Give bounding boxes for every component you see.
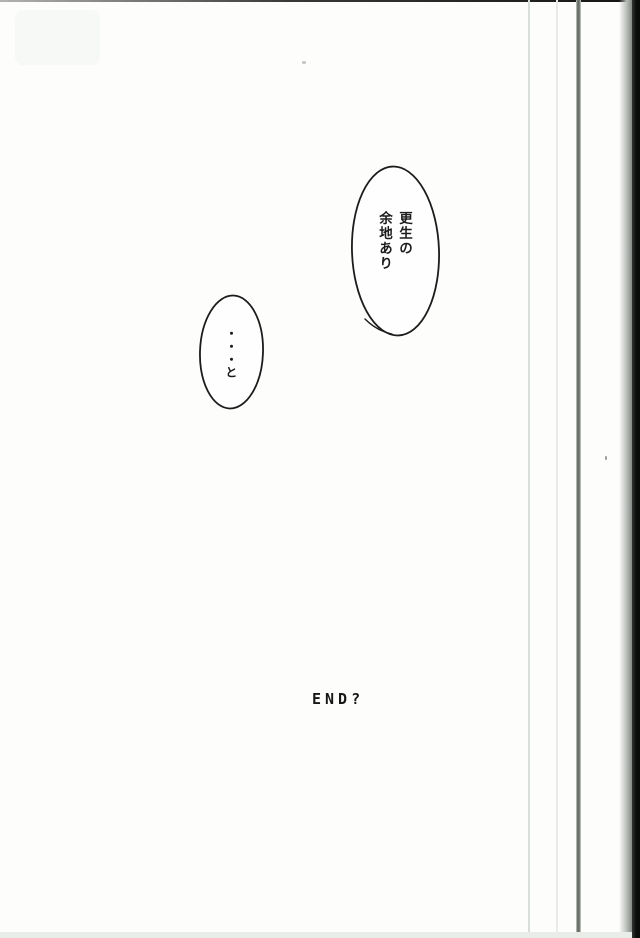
speech-bubble-2-text: ・・・と bbox=[222, 327, 240, 379]
manga-page-scan: 更生の 余地あり ・・・と END? bbox=[0, 0, 640, 938]
speech-bubble-1-text: 更生の 余地あり bbox=[374, 211, 414, 271]
end-label: END? bbox=[312, 690, 364, 708]
speech-bubble-outlines bbox=[0, 0, 640, 938]
